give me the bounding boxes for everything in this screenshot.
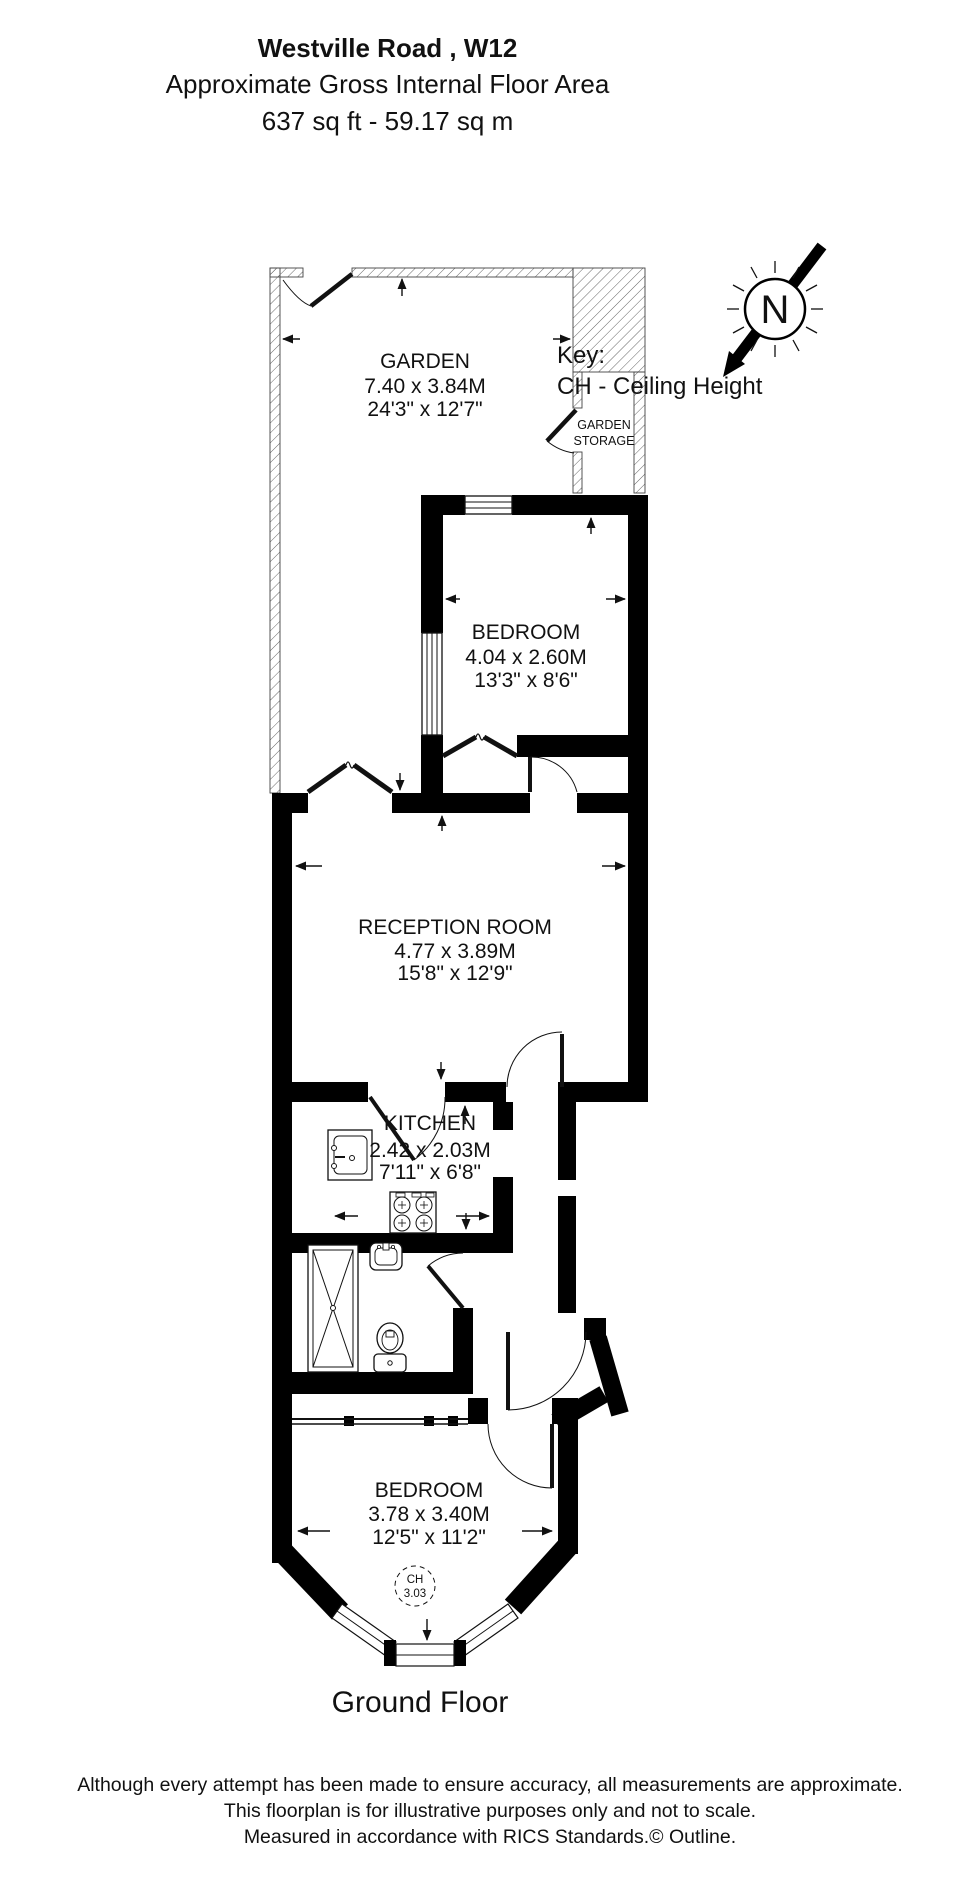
wall-segment xyxy=(558,1196,576,1313)
door-arc xyxy=(283,280,311,306)
kitchen-imperial: 7'11" x 6'8" xyxy=(379,1161,481,1184)
ceiling-height-marker: CH 3.03 xyxy=(395,1566,435,1606)
wall-segment xyxy=(558,1082,576,1180)
wall-segment xyxy=(272,1372,473,1394)
kitchen-hob xyxy=(390,1192,436,1233)
reception-imperial: 15'8" x 12'9" xyxy=(397,962,512,985)
wall-segment xyxy=(493,1102,513,1130)
door-arc xyxy=(547,441,574,453)
wall-segment xyxy=(513,1546,568,1607)
wall-segment xyxy=(468,1398,488,1424)
partition-lines xyxy=(292,1419,468,1424)
wall-segment xyxy=(270,268,280,793)
wall-segment xyxy=(421,735,443,793)
garden-imperial: 24'3" x 12'7" xyxy=(367,398,482,421)
wall-segment xyxy=(292,1082,368,1102)
garden-metric: 7.40 x 3.84M xyxy=(364,375,485,398)
floorplan-page: Westville Road , W12 Approximate Gross I… xyxy=(0,0,980,1883)
garden-label: GARDEN xyxy=(380,350,470,373)
wall-segment xyxy=(558,1424,578,1554)
reception-metric: 4.77 x 3.89M xyxy=(394,940,515,963)
front-bedroom-label: BEDROOM xyxy=(375,1479,484,1502)
wall-segment xyxy=(628,515,648,1082)
compass-north-label: N xyxy=(761,288,790,332)
ch-value: 3.03 xyxy=(404,1588,426,1600)
rear-bedroom-metric: 4.04 x 2.60M xyxy=(465,646,586,669)
kitchen-label: KITCHEN xyxy=(384,1112,476,1135)
wall-segment xyxy=(517,735,628,757)
rear-bedroom-side-window xyxy=(422,633,442,735)
door-lobby-reception xyxy=(530,757,577,792)
basin xyxy=(370,1243,402,1270)
floor-label: Ground Floor xyxy=(332,1686,509,1719)
wall-segment xyxy=(282,1551,340,1612)
front-bedroom-metric: 3.78 x 3.40M xyxy=(368,1503,489,1526)
bath-shower xyxy=(308,1245,358,1372)
bay-window xyxy=(332,1604,518,1666)
ch-circle xyxy=(395,1566,435,1606)
door-leaf xyxy=(547,410,576,441)
door-bathroom xyxy=(428,1253,463,1308)
rear-bedroom-imperial: 13'3" x 8'6" xyxy=(474,669,578,692)
rear-bedroom-top-window xyxy=(465,496,512,514)
bifold-door-bedroom xyxy=(443,734,517,756)
door-front-bedroom xyxy=(488,1424,552,1488)
disclaimer-line-2: This floorplan is for illustrative purpo… xyxy=(0,1798,980,1824)
disclaimer: Although every attempt has been made to … xyxy=(0,1772,980,1850)
front-bedroom-imperial: 12'5" x 11'2" xyxy=(372,1526,486,1549)
north-compass: N xyxy=(723,246,823,377)
wall-segment xyxy=(512,495,648,515)
door-leaf xyxy=(311,274,352,306)
bifold-door-garden xyxy=(308,762,392,792)
door-reception-hall xyxy=(507,1032,562,1087)
bay-window-post xyxy=(384,1640,396,1666)
toilet xyxy=(374,1323,406,1372)
wall-segment xyxy=(573,452,582,493)
bay-window-post xyxy=(454,1640,466,1666)
key-entry: CH - Ceiling Height xyxy=(557,373,763,400)
wall-segment xyxy=(421,495,465,515)
wall-segment xyxy=(392,793,530,813)
key-title: Key: xyxy=(557,342,605,369)
garden-gate-door xyxy=(283,274,352,306)
disclaimer-line-3: Measured in accordance with RICS Standar… xyxy=(0,1824,980,1850)
ch-label: CH xyxy=(407,1574,424,1586)
wall-segment xyxy=(453,1308,473,1372)
wall-segment xyxy=(577,793,628,813)
wall-segment xyxy=(270,268,303,277)
garden-storage-label-2: STORAGE xyxy=(574,434,635,448)
wall-segment xyxy=(445,1082,506,1102)
wall-segment xyxy=(493,1177,513,1233)
wall-segment xyxy=(421,515,443,633)
disclaimer-line-1: Although every attempt has been made to … xyxy=(0,1772,980,1798)
floorplan-drawing: N Key: CH - Ceiling Height GARDEN 7.40 x… xyxy=(0,0,980,1883)
kitchen-metric: 2.42 x 2.03M xyxy=(369,1139,490,1162)
wall-segment xyxy=(272,793,292,1563)
rear-bedroom-label: BEDROOM xyxy=(472,621,581,644)
wall-segment xyxy=(352,268,573,277)
garden-storage-door xyxy=(547,410,576,453)
reception-label: RECEPTION ROOM xyxy=(358,916,552,939)
kitchen-sink xyxy=(328,1130,372,1180)
garden-storage-label-1: GARDEN xyxy=(577,418,630,432)
